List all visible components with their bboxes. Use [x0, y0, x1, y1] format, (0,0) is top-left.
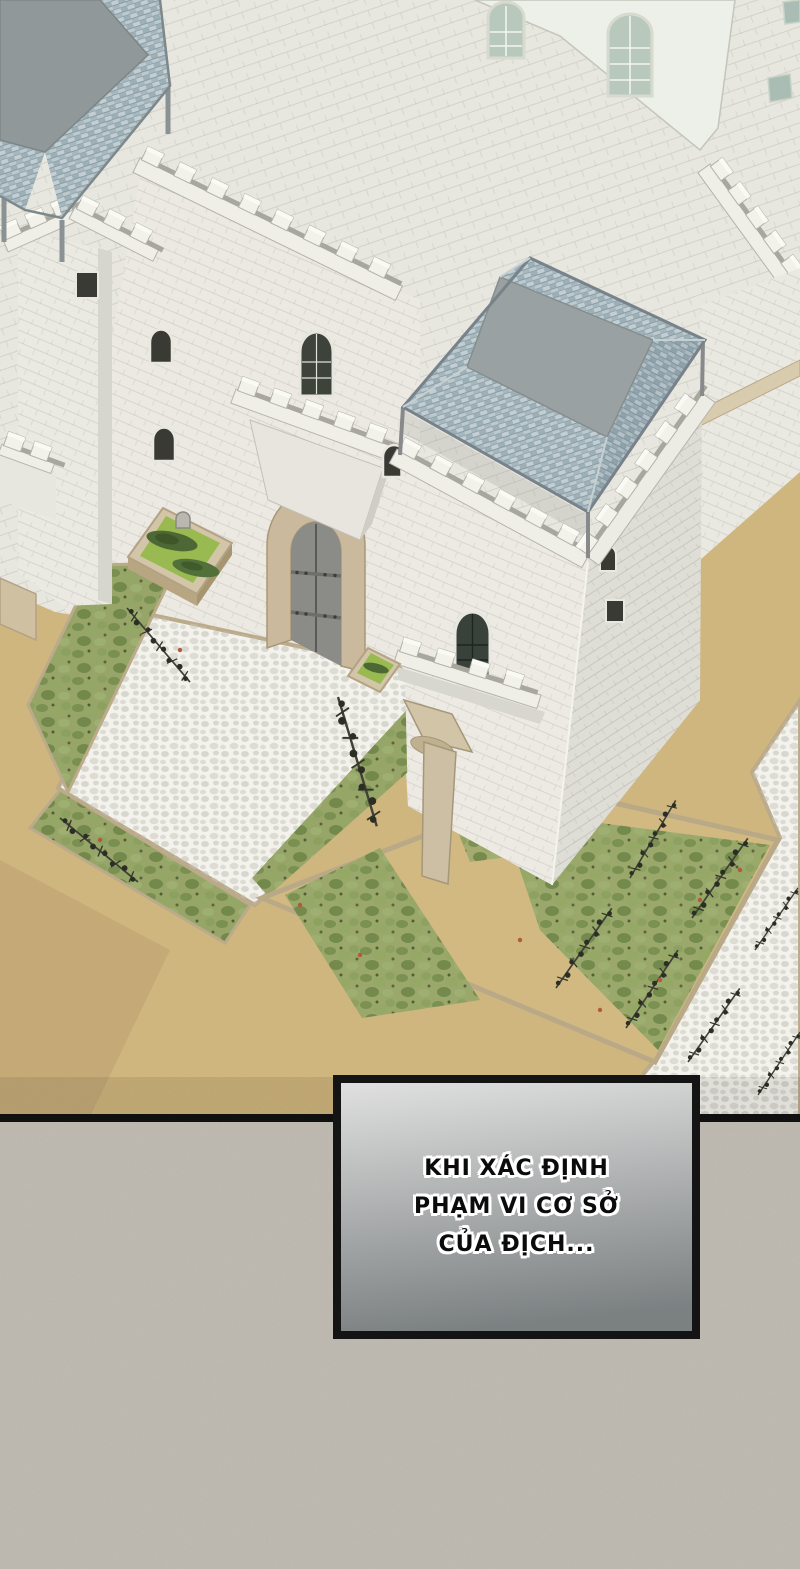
dialogue-line: KHI XÁC ĐỊNH — [424, 1150, 609, 1188]
square-window — [783, 0, 800, 24]
dialogue-line: PHẠM VI CƠ SỞ — [414, 1188, 619, 1226]
arched-window — [153, 428, 175, 462]
garden-stone — [176, 512, 190, 528]
square-window — [768, 74, 792, 102]
square-window — [76, 272, 98, 298]
castle-scene — [0, 0, 800, 1117]
arched-window — [150, 329, 172, 363]
dialogue-text: KHI XÁC ĐỊNH PHẠM VI CƠ SỞ CỦA ĐỊCH... — [333, 1079, 700, 1335]
small-window — [606, 600, 624, 622]
dialogue-line: CỦA ĐỊCH... — [439, 1226, 595, 1264]
